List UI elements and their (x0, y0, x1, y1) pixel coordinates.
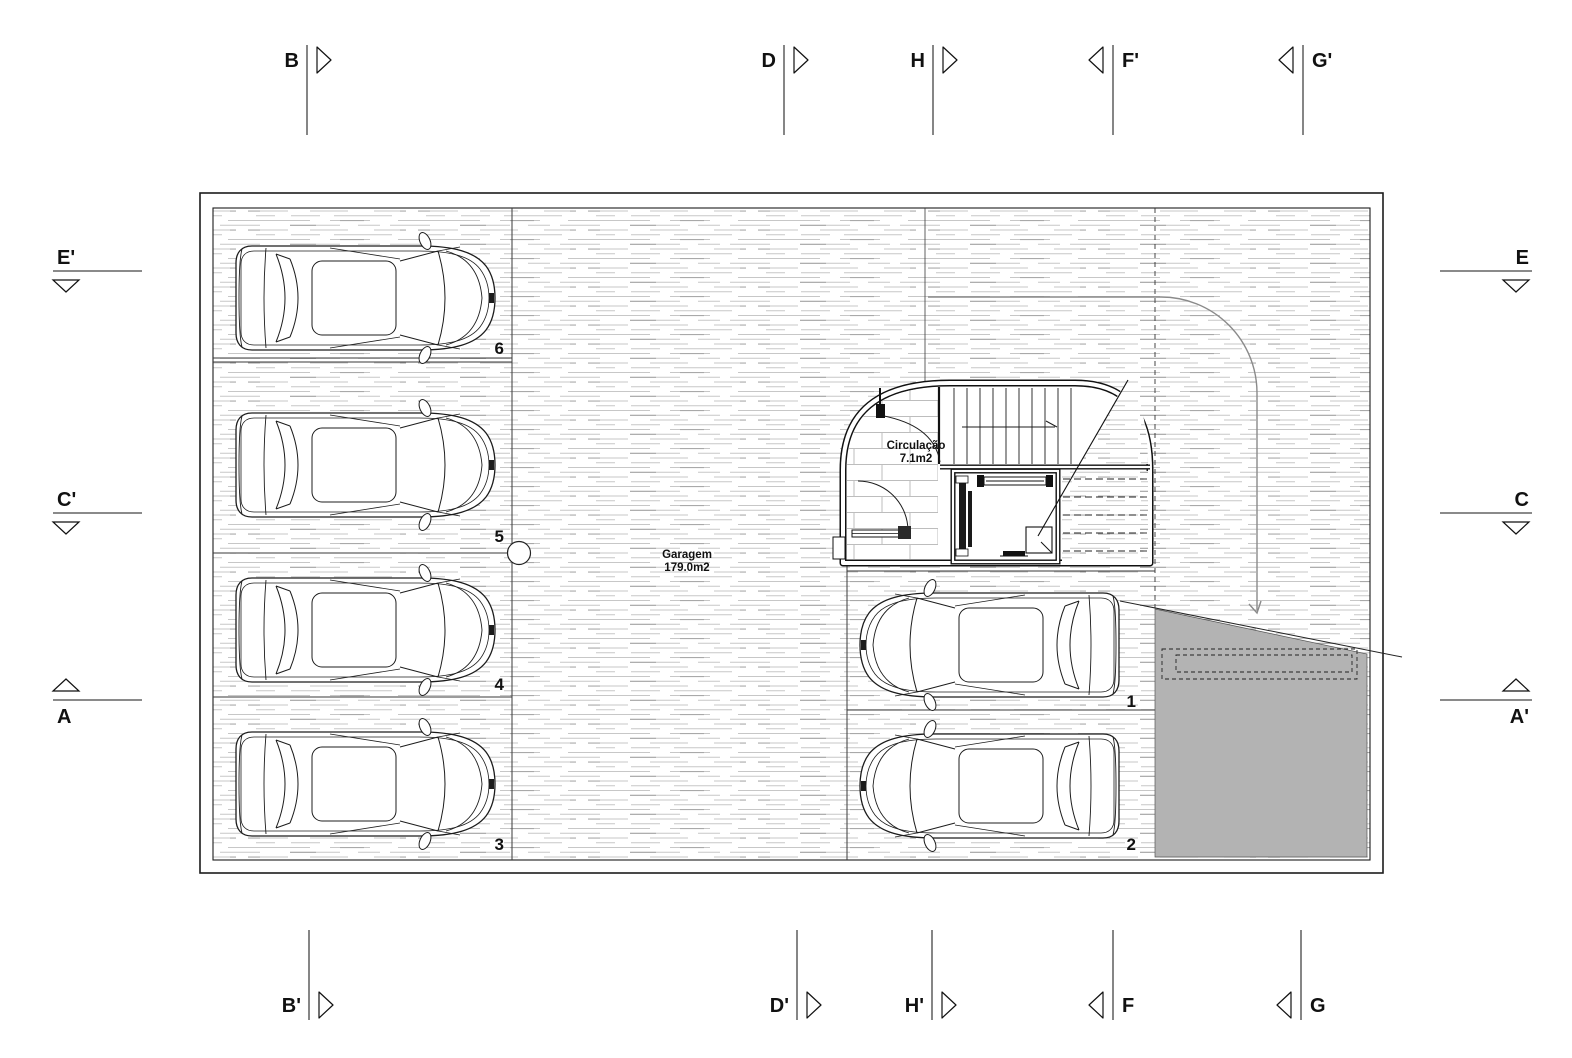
section-label-f: F (1122, 995, 1134, 1017)
stair-core (833, 380, 1150, 563)
section-marker-e-prime: E' (53, 247, 142, 292)
section-arrow-icon (1503, 522, 1529, 534)
car-space-6 (236, 231, 495, 366)
section-markers-left: E' C' A (53, 247, 142, 728)
section-label-b: B (285, 50, 299, 72)
section-marker-c-prime: C' (53, 489, 142, 534)
section-label-g: G (1310, 995, 1326, 1017)
section-marker-f: F (1089, 930, 1134, 1020)
wall-jog (833, 537, 845, 559)
space-number-4: 4 (495, 675, 505, 694)
section-markers-top: B D H F' G' (285, 45, 1333, 135)
section-label-d-prime: D' (770, 995, 789, 1017)
car-space-3 (236, 717, 495, 852)
section-label-a-prime: A' (1510, 706, 1529, 728)
ramp-strip (1062, 471, 1148, 561)
section-arrow-icon (53, 679, 79, 691)
section-arrow-icon (53, 522, 79, 534)
section-arrow-icon (319, 992, 333, 1018)
section-label-c: C (1515, 489, 1529, 511)
section-marker-h-prime: H' (905, 930, 956, 1020)
space-number-6: 6 (495, 339, 504, 358)
section-arrow-icon (53, 280, 79, 292)
section-label-f-prime: F' (1122, 50, 1139, 72)
space-number-3: 3 (495, 835, 504, 854)
car-space-5 (236, 398, 495, 533)
section-marker-c: C (1440, 489, 1532, 534)
section-marker-e: E (1440, 247, 1532, 292)
section-label-d: D (762, 50, 776, 72)
section-label-h-prime: H' (905, 995, 924, 1017)
car-space-2 (860, 719, 1119, 854)
section-marker-d: D (762, 45, 808, 135)
section-label-g-prime: G' (1312, 50, 1332, 72)
floor-plan-canvas: 6 5 4 3 1 2 Garagem 179.0m2 Circulação 7… (0, 0, 1572, 1058)
space-number-5: 5 (495, 527, 504, 546)
section-marker-f-prime: F' (1089, 45, 1139, 135)
car-space-4 (236, 563, 495, 698)
circulation-area: 7.1m2 (900, 453, 933, 465)
column-circle (508, 542, 531, 565)
garage-name: Garagem (662, 549, 712, 561)
car-space-1 (860, 578, 1119, 713)
section-label-c-prime: C' (57, 489, 76, 511)
section-marker-b-prime: B' (282, 930, 333, 1020)
section-label-e-prime: E' (57, 247, 75, 269)
section-marker-b: B (285, 45, 331, 135)
section-arrow-icon (1089, 992, 1103, 1018)
section-arrow-icon (943, 47, 957, 73)
section-label-b-prime: B' (282, 995, 301, 1017)
section-label-a: A (57, 706, 71, 728)
garage-area: 179.0m2 (664, 562, 709, 574)
section-marker-a: A (53, 679, 142, 728)
section-marker-h: H (911, 45, 957, 135)
section-arrow-icon (1279, 47, 1293, 73)
section-arrow-icon (807, 992, 821, 1018)
section-arrow-icon (1503, 679, 1529, 691)
section-markers-bottom: B' D' H' F G (282, 930, 1326, 1020)
section-arrow-icon (317, 47, 331, 73)
section-marker-g-prime: G' (1279, 45, 1332, 135)
section-arrow-icon (942, 992, 956, 1018)
section-marker-g: G (1277, 930, 1326, 1020)
section-label-h: H (911, 50, 925, 72)
section-marker-a-prime: A' (1440, 679, 1532, 728)
garage-label: Garagem 179.0m2 (662, 549, 712, 574)
section-marker-d-prime: D' (770, 930, 821, 1020)
section-markers-right: E C A' (1440, 247, 1532, 728)
section-arrow-icon (1277, 992, 1291, 1018)
garage-floor-plan-sheet: 6 5 4 3 1 2 Garagem 179.0m2 Circulação 7… (0, 0, 1572, 1058)
section-arrow-icon (1503, 280, 1529, 292)
elevator-guide-rail (959, 479, 966, 553)
section-arrow-icon (794, 47, 808, 73)
elevator (953, 471, 1058, 562)
space-number-1: 1 (1127, 692, 1136, 711)
section-arrow-icon (1089, 47, 1103, 73)
section-label-e: E (1516, 247, 1529, 269)
circulation-name: Circulação (887, 440, 946, 452)
space-number-2: 2 (1127, 835, 1136, 854)
